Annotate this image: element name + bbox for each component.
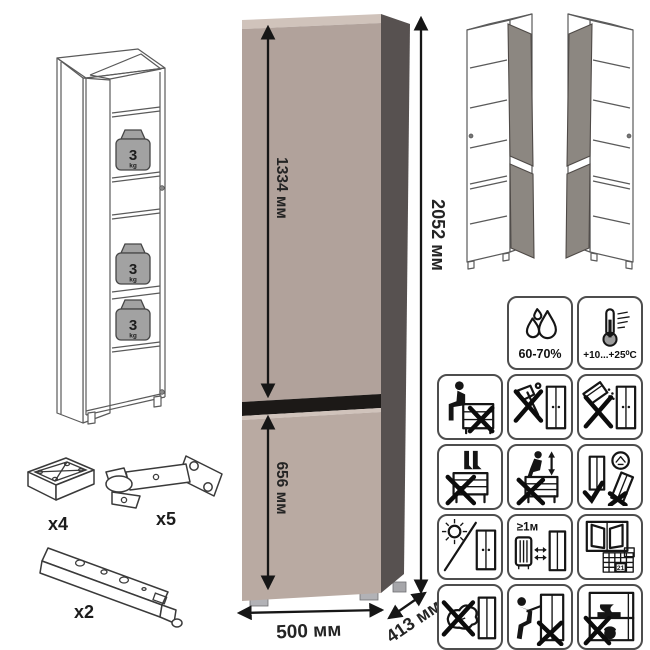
weight-value: 3 (129, 317, 137, 334)
grid-spacer (437, 296, 503, 370)
knob (160, 186, 165, 191)
dim-total-height-label: 2052 мм (428, 199, 448, 271)
ventilate-room-icon: 21 (577, 514, 643, 580)
heater-distance-label: ≥1м (517, 521, 538, 534)
wireframe-variant-right (566, 14, 633, 269)
furniture-spec-sheet: 3 kg 3 kg 3 kg (0, 0, 650, 650)
wireframe-cabinet-open: 3 kg 3 kg 3 kg (40, 45, 180, 435)
dim-upper-door-label: 1334 мм (273, 157, 290, 219)
weight-value: 3 (129, 261, 137, 278)
hinge-qty-label: x5 (156, 509, 176, 529)
acclimatization-day-label: 21 (617, 565, 625, 572)
no-direct-sunlight-icon (437, 514, 503, 580)
shelf-load-weight: 3 kg (116, 130, 150, 170)
hardware-parts: x4 x5 x2 (18, 440, 233, 645)
keep-distance-from-heater-icon: ≥1м (507, 514, 573, 580)
no-standing-icon (437, 444, 503, 510)
rail-part (40, 548, 182, 627)
lower-door (242, 412, 381, 601)
temperature-conditions-icon: +10...+25⁰C (577, 296, 643, 370)
weight-value: 3 (129, 147, 137, 164)
weight-unit: kg (129, 277, 137, 284)
wireframe-cabinet-variants (455, 8, 645, 293)
side-panel (381, 14, 410, 593)
dim-depth: 413 мм (382, 593, 444, 647)
dim-lower-door-label: 656 мм (273, 461, 290, 514)
cabinet-foot (393, 582, 406, 592)
no-sharp-objects-icon (507, 374, 573, 440)
rail-qty-label: x2 (74, 602, 94, 622)
no-jumping-icon (507, 444, 573, 510)
no-abrasive-powder-icon (577, 374, 643, 440)
transport-upright-icon (577, 444, 643, 510)
foot-glide-part (28, 458, 94, 500)
weight-unit: kg (129, 163, 137, 170)
foot-qty-label: x4 (48, 514, 68, 534)
shelf-load-weight: 3 kg (116, 244, 150, 284)
cabinet-3d-render: 1334 мм 656 мм 2052 мм 500 мм 413 мм (225, 5, 450, 650)
temperature-range-label: +10...+25⁰C (583, 351, 637, 361)
no-dragging-icon (507, 584, 573, 650)
hinge-part (106, 456, 222, 508)
dim-width: 500 мм (239, 610, 382, 643)
humidity-range-label: 60-70% (518, 348, 561, 361)
dim-depth-label: 413 мм (382, 595, 444, 646)
no-sitting-icon (437, 374, 503, 440)
thermometer-icon (582, 306, 638, 350)
water-drops-icon (512, 305, 568, 347)
open-door (57, 58, 83, 423)
no-heavy-objects-icon (577, 584, 643, 650)
shelf-load-weight: 3 kg (116, 300, 150, 340)
humidity-conditions-icon: 60-70% (507, 296, 573, 370)
upper-door (242, 23, 381, 402)
dim-width-label: 500 мм (276, 620, 342, 644)
no-wet-cloth-icon (437, 584, 503, 650)
weight-unit: kg (129, 333, 137, 340)
care-icons-panel: 60-70% +10...+25⁰C (437, 296, 643, 650)
wireframe-variant-left (467, 14, 534, 269)
knob (160, 390, 165, 395)
